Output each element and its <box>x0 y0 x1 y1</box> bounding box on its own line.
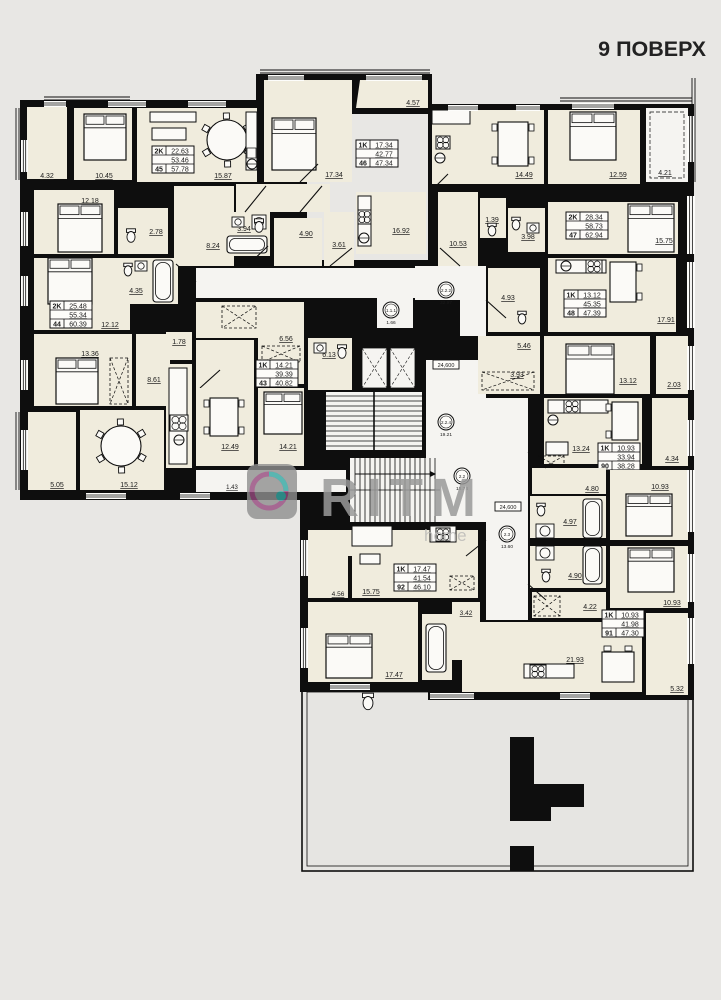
svg-text:3.61: 3.61 <box>332 242 346 249</box>
svg-text:57.78: 57.78 <box>171 166 189 173</box>
svg-text:47.34: 47.34 <box>375 160 393 167</box>
svg-text:2.03: 2.03 <box>667 382 681 389</box>
svg-text:10.93: 10.93 <box>651 484 669 491</box>
svg-text:1K: 1K <box>601 445 610 452</box>
svg-text:10.93: 10.93 <box>617 445 635 452</box>
svg-text:13.60: 13.60 <box>501 544 513 550</box>
svg-text:3.42: 3.42 <box>460 610 473 617</box>
svg-text:45: 45 <box>155 166 163 173</box>
svg-text:1.66: 1.66 <box>386 320 396 326</box>
svg-text:15.75: 15.75 <box>362 589 380 596</box>
svg-text:17.34: 17.34 <box>325 172 343 179</box>
svg-text:1.1.1: 1.1.1 <box>386 308 397 313</box>
svg-text:38.28: 38.28 <box>617 463 635 470</box>
svg-text:17.91: 17.91 <box>657 317 675 324</box>
svg-text:10.93: 10.93 <box>621 612 639 619</box>
svg-text:47.30: 47.30 <box>621 630 639 637</box>
svg-text:12.59: 12.59 <box>609 172 627 179</box>
svg-text:39.39: 39.39 <box>275 371 293 378</box>
svg-text:16.92: 16.92 <box>392 228 410 235</box>
svg-text:4.93: 4.93 <box>501 295 515 302</box>
svg-text:92: 92 <box>397 584 405 591</box>
svg-text:4.56: 4.56 <box>332 591 345 598</box>
svg-text:4.57: 4.57 <box>406 100 420 107</box>
svg-text:14.21: 14.21 <box>275 362 293 369</box>
svg-text:6.56: 6.56 <box>279 336 293 343</box>
svg-text:41.98: 41.98 <box>621 621 639 628</box>
svg-text:2.2.4: 2.2.4 <box>441 420 452 425</box>
svg-text:10.45: 10.45 <box>95 173 113 180</box>
svg-text:2.3: 2.3 <box>504 532 511 537</box>
svg-text:1.43: 1.43 <box>226 485 238 491</box>
svg-text:45.35: 45.35 <box>583 301 601 308</box>
svg-text:4.80: 4.80 <box>585 486 599 493</box>
svg-text:33.94: 33.94 <box>617 454 635 461</box>
svg-text:1.78: 1.78 <box>172 339 186 346</box>
svg-text:2K: 2K <box>569 214 578 221</box>
svg-text:17.47: 17.47 <box>413 566 431 573</box>
svg-text:RITM: RITM <box>320 468 484 528</box>
svg-text:15.75: 15.75 <box>655 238 673 245</box>
svg-text:19.21: 19.21 <box>440 432 452 438</box>
svg-text:62.94: 62.94 <box>585 232 603 239</box>
svg-text:13.12: 13.12 <box>619 378 637 385</box>
svg-text:12.12: 12.12 <box>101 322 119 329</box>
svg-text:40.82: 40.82 <box>275 380 293 387</box>
svg-text:17.34: 17.34 <box>375 142 393 149</box>
svg-text:2K: 2K <box>53 303 62 310</box>
svg-text:13.36: 13.36 <box>81 351 99 358</box>
svg-text:17.47: 17.47 <box>385 672 403 679</box>
svg-text:4.90: 4.90 <box>568 573 582 580</box>
svg-text:55.34: 55.34 <box>69 312 87 319</box>
svg-text:24,600: 24,600 <box>438 363 455 369</box>
svg-text:47: 47 <box>569 232 577 239</box>
svg-text:12.18: 12.18 <box>81 198 99 205</box>
svg-text:46.10: 46.10 <box>413 584 431 591</box>
svg-text:4.97: 4.97 <box>563 519 577 526</box>
svg-text:14.49: 14.49 <box>515 172 533 179</box>
svg-text:4.32: 4.32 <box>40 173 54 180</box>
svg-text:home: home <box>424 526 467 545</box>
svg-text:60.39: 60.39 <box>69 321 87 328</box>
svg-text:43: 43 <box>259 380 267 387</box>
svg-text:42.77: 42.77 <box>375 151 393 158</box>
svg-text:2.2.2: 2.2.2 <box>441 288 452 293</box>
svg-text:2.78: 2.78 <box>149 229 163 236</box>
svg-text:91: 91 <box>605 630 613 637</box>
svg-text:4.35: 4.35 <box>129 288 143 295</box>
svg-text:1K: 1K <box>567 292 576 299</box>
svg-text:41.54: 41.54 <box>413 575 431 582</box>
svg-text:21.93: 21.93 <box>566 657 584 664</box>
svg-text:3.98: 3.98 <box>521 234 535 241</box>
svg-text:4.21: 4.21 <box>658 170 672 177</box>
svg-text:4.22: 4.22 <box>583 604 597 611</box>
svg-text:4.34: 4.34 <box>665 456 679 463</box>
svg-text:46: 46 <box>359 160 367 167</box>
svg-text:13.12: 13.12 <box>583 292 601 299</box>
svg-text:15.12: 15.12 <box>120 482 138 489</box>
svg-text:8.24: 8.24 <box>206 243 220 250</box>
svg-text:5.05: 5.05 <box>50 482 64 489</box>
svg-text:4.90: 4.90 <box>299 231 313 238</box>
svg-text:8.61: 8.61 <box>147 377 161 384</box>
svg-text:10.53: 10.53 <box>449 241 467 248</box>
svg-text:15.87: 15.87 <box>214 173 232 180</box>
svg-text:44: 44 <box>53 321 61 328</box>
svg-text:5.46: 5.46 <box>517 343 531 350</box>
svg-text:32.97: 32.97 <box>440 300 452 306</box>
svg-text:14.21: 14.21 <box>279 444 297 451</box>
svg-text:28.34: 28.34 <box>585 214 603 221</box>
svg-text:1K: 1K <box>259 362 268 369</box>
svg-text:10.93: 10.93 <box>663 600 681 607</box>
svg-text:13.24: 13.24 <box>572 446 590 453</box>
svg-text:58.73: 58.73 <box>585 223 603 230</box>
svg-text:22.63: 22.63 <box>171 148 189 155</box>
svg-text:2K: 2K <box>155 148 164 155</box>
svg-text:1K: 1K <box>397 566 406 573</box>
svg-text:1K: 1K <box>359 142 368 149</box>
svg-text:1K: 1K <box>605 612 614 619</box>
svg-text:12.49: 12.49 <box>221 444 239 451</box>
svg-text:47.39: 47.39 <box>583 310 601 317</box>
svg-text:9 ПОВЕРХ: 9 ПОВЕРХ <box>598 37 706 61</box>
svg-text:25.48: 25.48 <box>69 303 87 310</box>
svg-text:48: 48 <box>567 310 575 317</box>
svg-text:53.46: 53.46 <box>171 157 189 164</box>
svg-text:24,600: 24,600 <box>500 505 517 511</box>
svg-text:5.32: 5.32 <box>670 686 684 693</box>
